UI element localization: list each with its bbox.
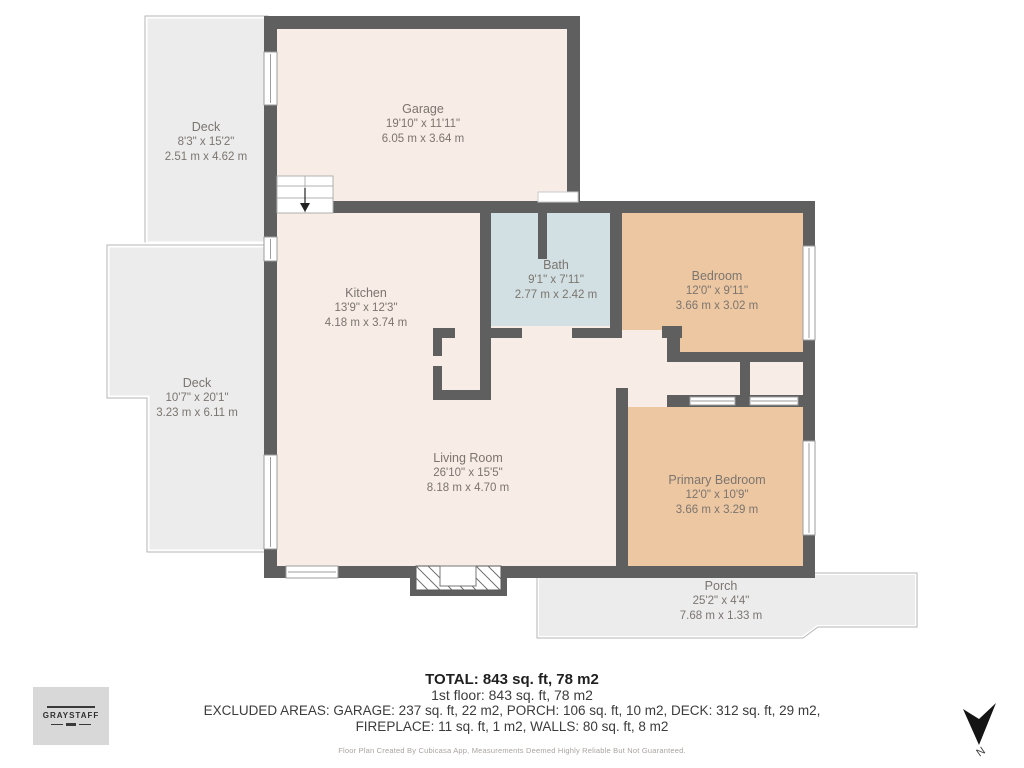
area-summary: TOTAL: 843 sq. ft, 78 m2 1st floor: 843 … (0, 672, 1024, 759)
stairs (277, 176, 333, 213)
primary-bedroom-floor (628, 407, 803, 566)
floorplan-drawing: N (0, 0, 1024, 768)
logo-sub-decoration (51, 723, 91, 726)
disclaimer-text: Floor Plan Created By Cubicasa App, Meas… (0, 743, 1024, 759)
graystaff-logo: GRAYSTAFF (33, 687, 109, 745)
fireplace-opening (440, 566, 476, 586)
garage-floor (277, 29, 567, 201)
logo-top-bar (47, 706, 95, 708)
bath-floor (491, 213, 610, 326)
garage-door-opening (538, 192, 578, 202)
fireplace (410, 566, 507, 596)
deck-top-left-area (145, 16, 268, 244)
excluded-areas-line2: FIREPLACE: 11 sq. ft, 1 m2, WALLS: 80 sq… (0, 719, 1024, 735)
floorplan-page: { "plan": { "rooms": [ {"id":"deck_top",… (0, 0, 1024, 768)
excluded-areas-line1: EXCLUDED AREAS: GARAGE: 237 sq. ft, 22 m… (0, 703, 1024, 719)
first-floor-text: 1st floor: 843 sq. ft, 78 m2 (0, 688, 1024, 704)
logo-text: GRAYSTAFF (43, 711, 100, 720)
deck-left-area (107, 245, 268, 552)
total-area-text: TOTAL: 843 sq. ft, 78 m2 (0, 672, 1024, 688)
porch-area (537, 573, 917, 638)
bedroom-floor (622, 213, 803, 330)
